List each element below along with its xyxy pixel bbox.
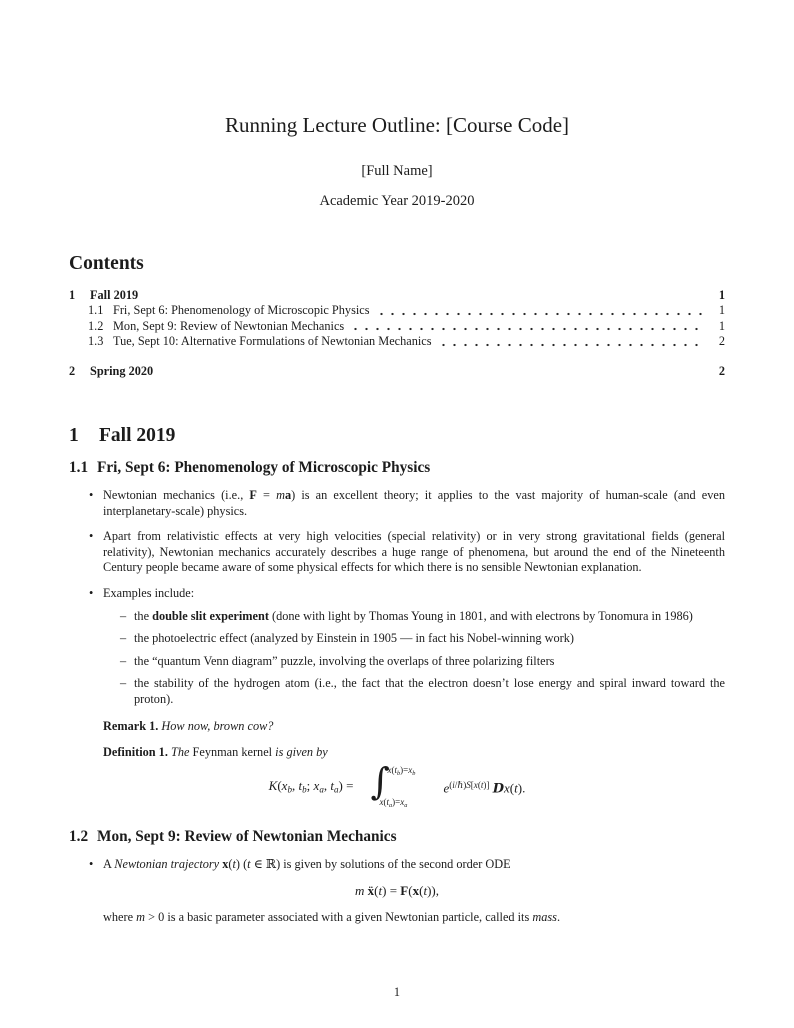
toc-entry-1-1: 1.1 Fri, Sept 6: Phenomenology of Micros… [69,303,725,318]
toc-page-number: 2 [709,334,725,349]
section-title: Fall 2019 [99,425,175,446]
newton-second-law-equation: m ẍ(t) = F(x(t)), [69,881,725,901]
toc-entry-spring-2020: 2 Spring 2020 2 [69,364,725,379]
toc-page-number: 2 [709,364,725,379]
contents-heading: Contents [69,252,725,276]
bullet-text: Apart from relativistic effects at very … [103,529,725,576]
bullet-icon: • [69,529,103,576]
remark-label: Remark 1. [103,719,158,733]
subsection-title: Mon, Sept 9: Review of Newtonian Mechani… [97,828,397,845]
subsection-1-1-heading: 1.1Fri, Sept 6: Phenomenology of Microsc… [69,458,725,478]
bullet-text: Newtonian mechanics (i.e., F = ma) is an… [103,488,725,519]
toc-page-number: 1 [709,319,725,334]
section-number: 1 [69,423,99,449]
example-item-double-slit: – the double slit experiment (done with … [69,609,725,625]
subsection-number: 1.2 [69,827,97,847]
dash-icon: – [69,676,134,707]
toc-page-number: 1 [709,288,725,303]
subsection-title: Fri, Sept 6: Phenomenology of Microscopi… [97,459,430,476]
toc-label: Fall 2019 [90,288,138,303]
toc-dot-leader [350,319,705,334]
equation-rhs: e(i/ℏ)S[x(t)] Dx(t). [443,778,525,797]
integral-lower-limit: x(ta)=xa [379,798,407,810]
example-text: the “quantum Venn diagram” puzzle, invol… [134,654,725,670]
toc-number: 1 [69,288,90,303]
toc-entry-fall-2019: 1 Fall 2019 1 [69,288,725,303]
bullet-list-1-2: • A Newtonian trajectory x(t) (t ∈ ℝ) is… [69,857,725,926]
document-title: Running Lecture Outline: [Course Code] [69,0,725,138]
bullet-item-newtonian-mechanics: • Newtonian mechanics (i.e., F = ma) is … [69,488,725,519]
section-1-heading: 1Fall 2019 [69,423,725,449]
definition-label: Definition 1. [103,745,168,759]
example-text: the stability of the hydrogen atom (i.e.… [134,676,725,707]
page-number: 1 [0,985,794,1001]
definition-paragraph: Definition 1. The Feynman kernel is give… [103,745,725,761]
example-item-quantum-venn: – the “quantum Venn diagram” puzzle, inv… [69,654,725,670]
bullet-icon: • [69,488,103,519]
bullet-icon: • [69,857,103,873]
examples-sublist: – the double slit experiment (done with … [69,609,725,708]
example-item-hydrogen-atom: – the stability of the hydrogen atom (i.… [69,676,725,707]
dash-icon: – [69,609,134,625]
date-line: Academic Year 2019-2020 [69,192,725,210]
toc-label: Mon, Sept 9: Review of Newtonian Mechani… [113,319,344,334]
table-of-contents: 1 Fall 2019 1 1.1 Fri, Sept 6: Phenomeno… [69,288,725,379]
bullet-text: A Newtonian trajectory x(t) (t ∈ ℝ) is g… [103,857,725,873]
toc-dot-leader [438,334,705,349]
toc-number: 1.3 [88,334,113,349]
toc-number: 2 [69,364,90,379]
toc-label: Tue, Sept 10: Alternative Formulations o… [113,334,432,349]
toc-entry-1-3: 1.3 Tue, Sept 10: Alternative Formulatio… [69,334,725,349]
bullet-item-relativistic-effects: • Apart from relativistic effects at ver… [69,529,725,576]
toc-number: 1.1 [88,303,113,318]
definition-body: The Feynman kernel is given by [168,745,328,759]
remark-paragraph: Remark 1. How now, brown cow? [103,719,725,735]
subsection-number: 1.1 [69,458,97,478]
mass-closing-paragraph: where m > 0 is a basic parameter associa… [103,910,725,926]
dash-icon: – [69,654,134,670]
toc-label: Fri, Sept 6: Phenomenology of Microscopi… [113,303,370,318]
subsection-1-2-heading: 1.2Mon, Sept 9: Review of Newtonian Mech… [69,827,725,847]
integral-upper-limit: x(tb)=xb [387,766,415,778]
feynman-kernel-equation: K(xb, tb; xa, ta) = ∫ x(tb)=xb x(ta)=xa … [69,765,725,811]
example-text: the double slit experiment (done with li… [134,609,725,625]
toc-label: Spring 2020 [90,364,153,379]
bullet-item-newtonian-trajectory: • A Newtonian trajectory x(t) (t ∈ ℝ) is… [69,857,725,873]
document-page: Running Lecture Outline: [Course Code] [… [0,0,794,1028]
author-line: [Full Name] [69,162,725,180]
example-item-photoelectric: – the photoelectric effect (analyzed by … [69,631,725,647]
bullet-list-1-1: • Newtonian mechanics (i.e., F = ma) is … [69,488,725,811]
toc-page-number: 1 [709,303,725,318]
toc-dot-leader [376,303,705,318]
bullet-item-examples-include: • Examples include: [69,586,725,602]
equation-lhs: K(xb, tb; xa, ta) = [269,778,354,798]
integral: ∫ x(tb)=xb x(ta)=xa [354,765,442,811]
bullet-icon: • [69,586,103,602]
toc-entry-1-2: 1.2 Mon, Sept 9: Review of Newtonian Mec… [69,319,725,334]
dash-icon: – [69,631,134,647]
remark-body: How now, brown cow? [158,719,273,733]
bullet-text: Examples include: [103,586,725,602]
example-text: the photoelectric effect (analyzed by Ei… [134,631,725,647]
toc-number: 1.2 [88,319,113,334]
